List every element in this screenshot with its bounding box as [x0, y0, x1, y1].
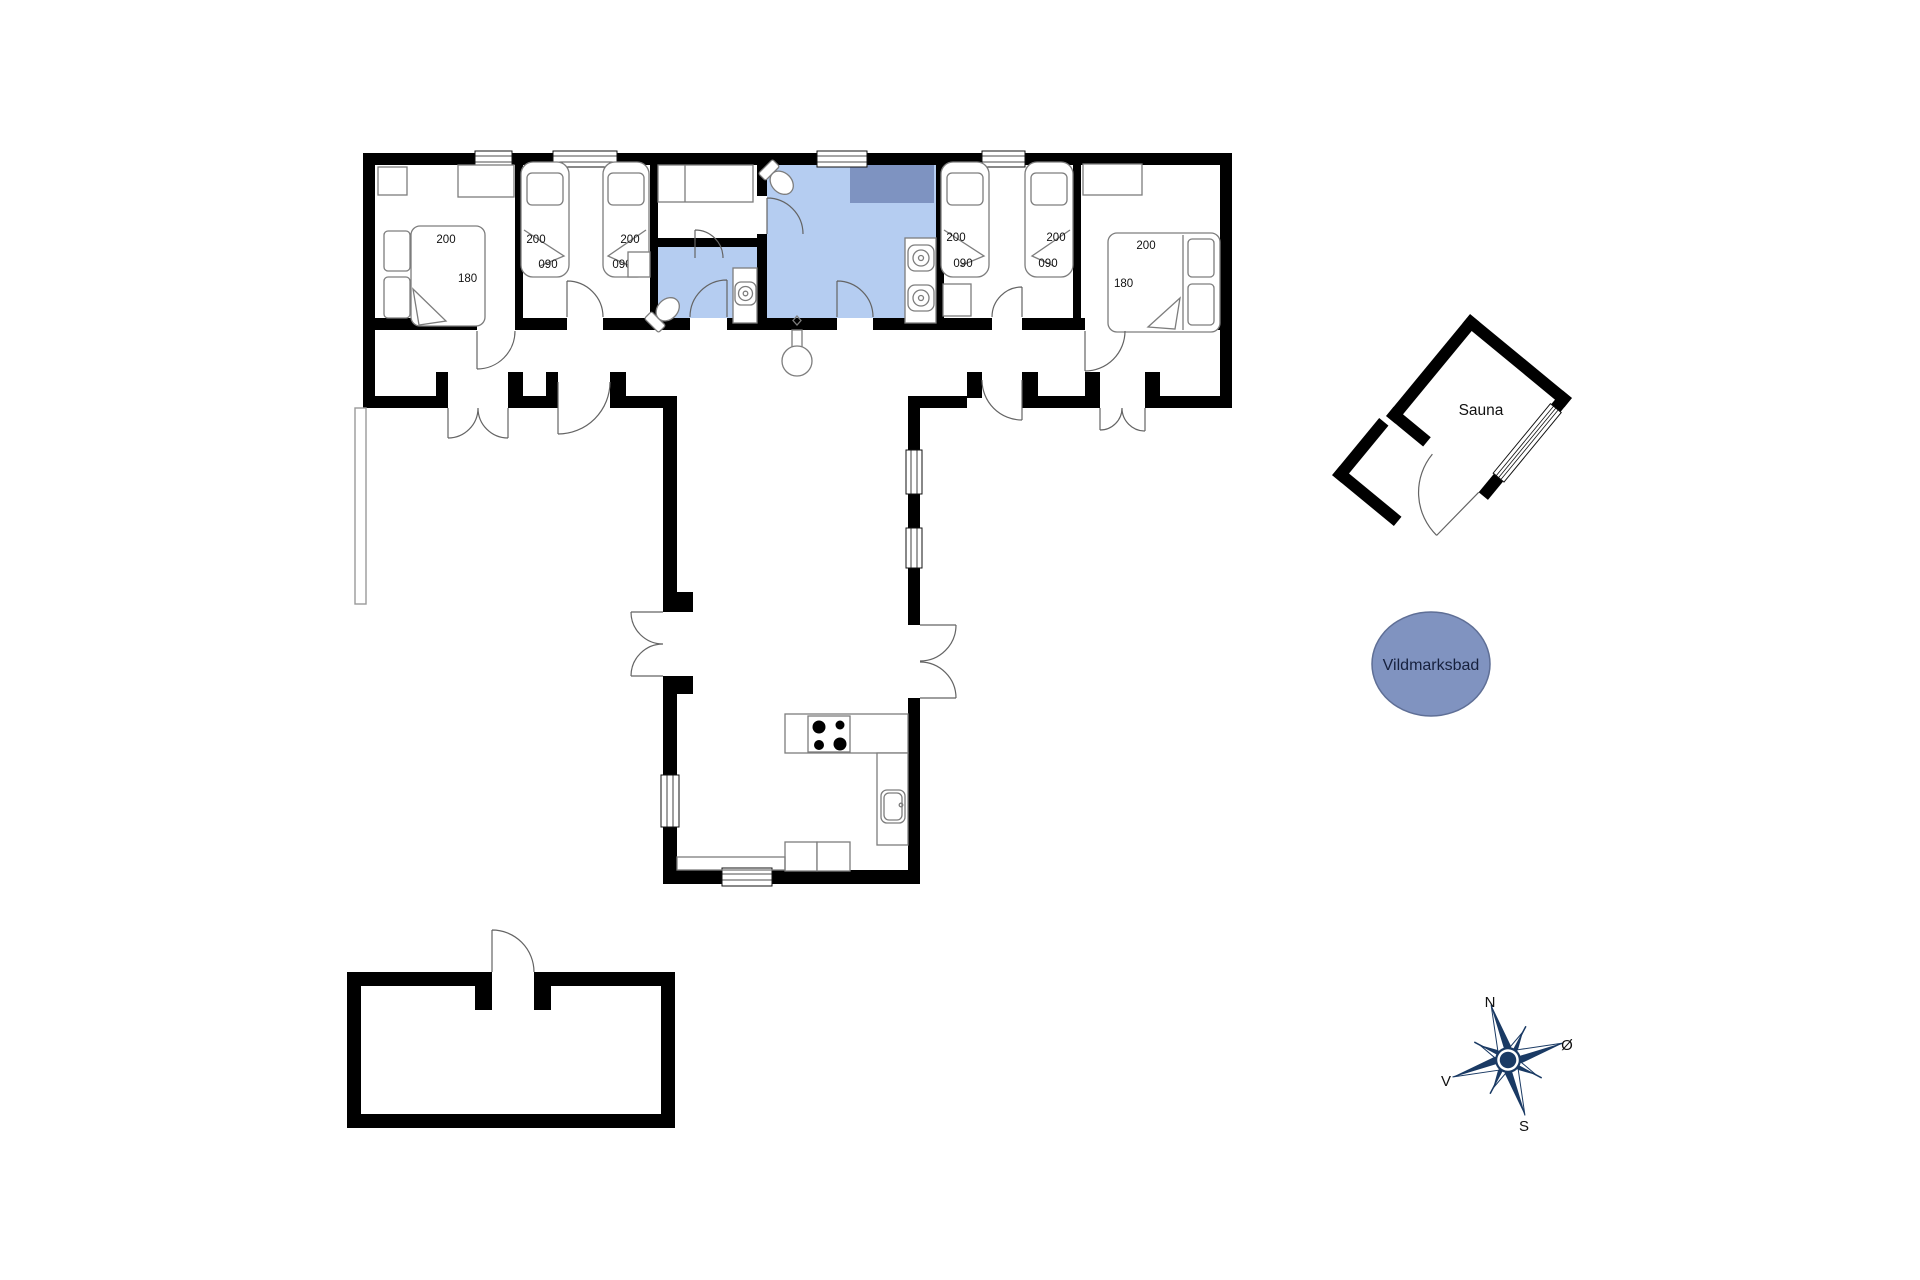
compass-label-west: V	[1441, 1073, 1451, 1090]
bed-dim: 200	[1136, 240, 1155, 252]
compass-hub	[1492, 1044, 1524, 1076]
wardrobe	[658, 165, 753, 202]
entry-door-right-single	[982, 380, 1022, 420]
room-double-bedroom-right: 200 180	[1083, 164, 1220, 371]
annex-door	[492, 930, 534, 972]
burner	[836, 721, 845, 730]
compass-rose	[1436, 988, 1581, 1133]
living-room-stem	[631, 396, 956, 886]
window-twin-right	[982, 151, 1025, 167]
sauna-label: Sauna	[1459, 402, 1504, 419]
annex-building	[347, 930, 675, 1128]
bed-dim: 090	[953, 258, 972, 270]
bed-dim: 180	[1114, 278, 1133, 290]
shower-area	[850, 165, 934, 203]
entry-door-right-double	[1100, 408, 1145, 431]
bed-dim: 200	[1046, 232, 1065, 244]
door-bedroom1	[477, 331, 515, 369]
room-double-bedroom-left: 200 180	[378, 165, 515, 369]
bedside-table	[384, 231, 410, 271]
french-doors-west	[631, 612, 663, 676]
door-bedroom6	[1085, 331, 1125, 371]
bed-dim: 200	[436, 234, 455, 246]
room-twin-right: 200 090 200 090	[941, 162, 1073, 317]
bedside-table	[384, 277, 410, 318]
window-living-south	[722, 868, 772, 886]
sink	[908, 245, 934, 271]
bed-dim: 200	[946, 232, 965, 244]
kitchen-counter-bottom	[785, 842, 817, 871]
window-bathroom	[817, 151, 867, 167]
french-doors-east	[920, 625, 956, 698]
burner	[814, 740, 824, 750]
pillow	[608, 173, 644, 205]
bedside-table	[1188, 284, 1214, 325]
burner	[813, 721, 826, 734]
kitchen-counter-bottom	[817, 842, 850, 871]
wardrobe	[458, 165, 514, 197]
kitchen	[677, 714, 908, 871]
table	[943, 284, 971, 316]
floor-plan-drawing: 200 180 200 090 200 090	[0, 0, 1920, 1280]
burner	[834, 738, 847, 751]
closet	[628, 252, 650, 277]
door-twin-right	[992, 287, 1022, 317]
wardrobe	[378, 167, 407, 195]
bed-dim: 090	[1038, 258, 1057, 270]
entry-door-left-double	[448, 408, 508, 438]
pillow	[947, 173, 983, 205]
bed-dim: 180	[458, 273, 477, 285]
ceiling-lamp	[782, 330, 812, 376]
window-living-west	[661, 775, 679, 827]
bedside-table	[1188, 239, 1214, 277]
pillow	[1031, 173, 1067, 205]
door-twin-left	[567, 281, 603, 317]
compass-label-north: N	[1485, 994, 1496, 1011]
bed-dim: 090	[538, 259, 557, 271]
compass-label-east: Ø	[1561, 1037, 1573, 1054]
hot-tub-label: Vildmarksbad	[1383, 657, 1480, 674]
floor-plan-page: 200 180 200 090 200 090	[0, 0, 1920, 1280]
wardrobe	[1083, 164, 1142, 195]
bed-dim: 200	[526, 234, 545, 246]
bed-dim: 200	[620, 234, 639, 246]
sink	[908, 285, 934, 311]
terrace-edge	[355, 408, 366, 604]
hot-tub: Vildmarksbad	[1372, 612, 1490, 716]
bedroom-wing: 200 180 200 090 200 090	[363, 151, 1232, 438]
sauna-building	[1332, 312, 1573, 563]
compass-label-south: S	[1519, 1118, 1529, 1135]
wing-exterior-bottom-wall	[363, 372, 1232, 408]
window-living-east-1	[906, 450, 922, 494]
pillow	[527, 173, 563, 205]
room-twin-left: 200 090 200 090	[521, 162, 650, 317]
entry-door-left-single	[558, 382, 610, 434]
window-living-east-2	[906, 528, 922, 568]
